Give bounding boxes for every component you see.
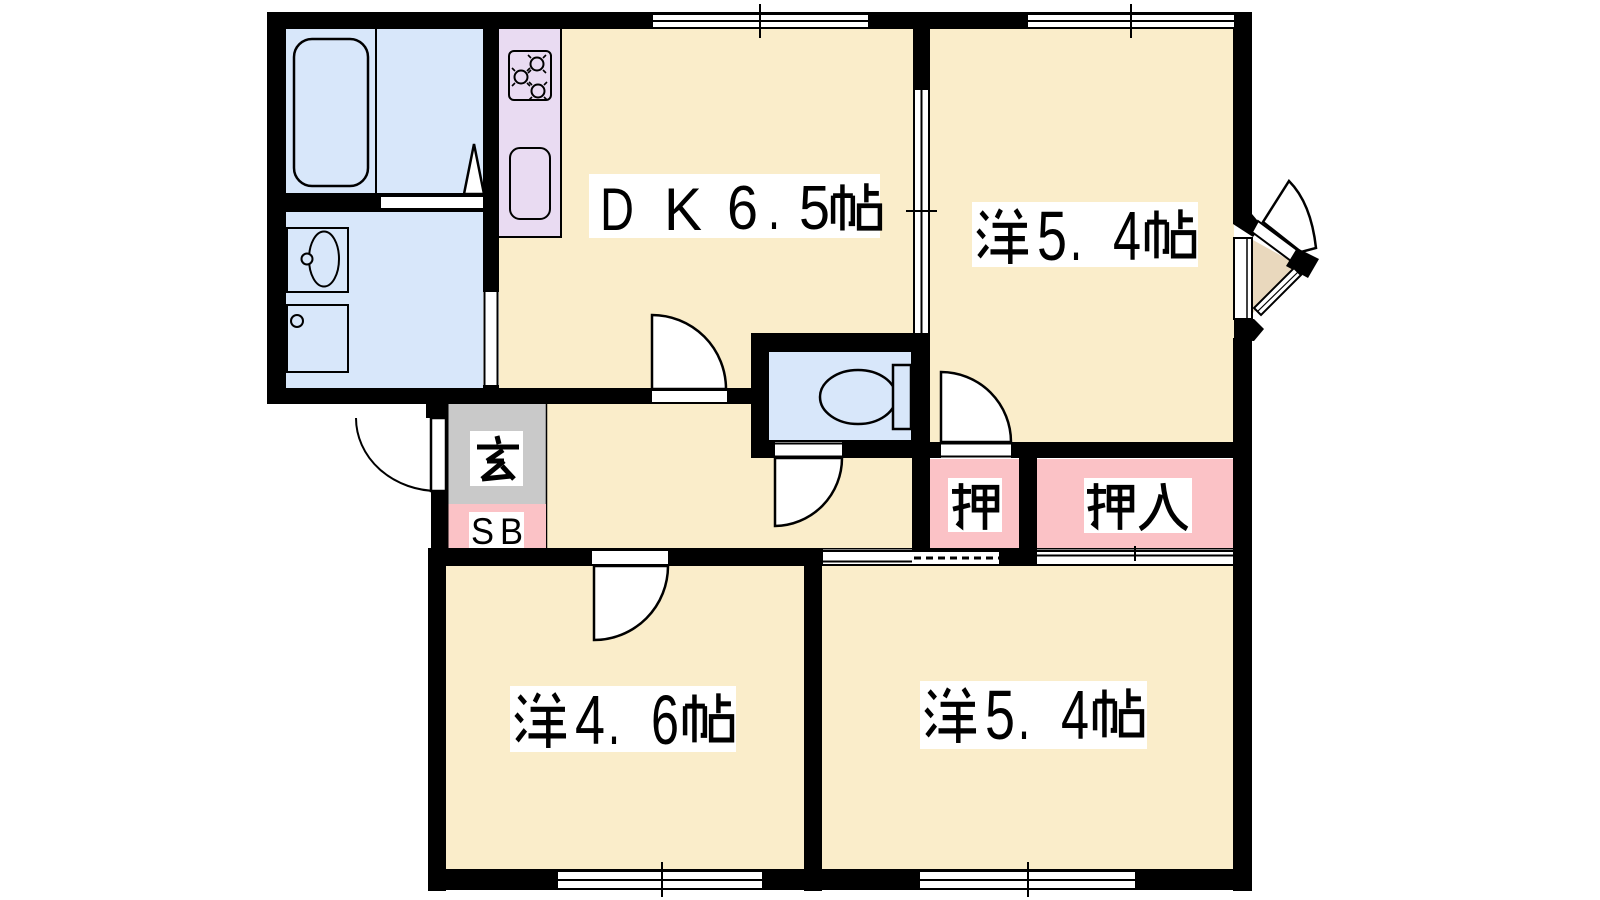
svg-text:.: . (608, 681, 620, 759)
svg-text:S: S (471, 511, 494, 552)
svg-text:4: 4 (1113, 197, 1141, 275)
svg-text:6: 6 (651, 681, 679, 759)
svg-text:.: . (768, 174, 780, 243)
svg-text:5: 5 (985, 676, 1015, 754)
svg-text:B: B (500, 511, 523, 552)
svg-text:K: K (664, 176, 702, 243)
svg-text:6: 6 (727, 174, 758, 243)
svg-text:5: 5 (1037, 197, 1067, 275)
svg-text:.: . (1070, 197, 1082, 275)
svg-text:4: 4 (575, 681, 605, 759)
svg-text:.: . (1018, 676, 1030, 754)
svg-text:4: 4 (1061, 676, 1089, 754)
svg-text:D: D (600, 176, 634, 243)
svg-text:5: 5 (799, 174, 830, 243)
